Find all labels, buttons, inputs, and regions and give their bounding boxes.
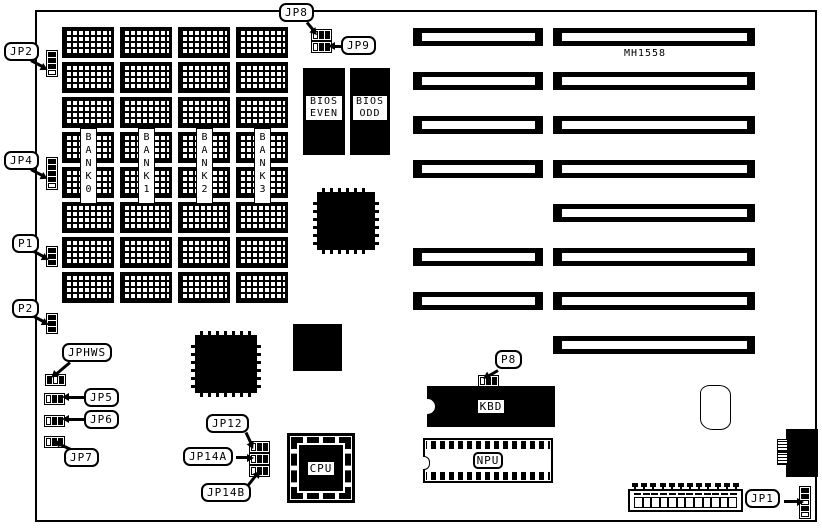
jumper-cell-closed (257, 455, 262, 463)
power-pin (724, 483, 730, 490)
jumper-cell-open (313, 43, 318, 51)
power-dash (730, 493, 737, 495)
p1-label: P1 (12, 234, 39, 253)
jumper-cell-closed (48, 52, 56, 57)
power-sq (711, 497, 720, 508)
jumper-cell-closed (59, 376, 64, 384)
power-sq (694, 497, 703, 508)
power-dash (678, 493, 685, 495)
jumper-cell-closed (48, 58, 56, 63)
npu-pin-row-bottom (426, 472, 550, 480)
bank-label-3: B A N K 3 (254, 128, 271, 204)
power-sq (703, 497, 712, 508)
p8-label: P8 (495, 350, 522, 369)
power-dash (686, 493, 693, 495)
power-dash (634, 493, 641, 495)
slot-6-short-segment (413, 248, 543, 266)
dram-chip (120, 237, 172, 268)
jp5-tail (67, 396, 85, 399)
dram-chip (178, 97, 230, 128)
dram-chip (178, 62, 230, 93)
slot-2-long-segment (553, 72, 755, 90)
power-dash (643, 493, 650, 495)
qfp-chip-chipset (191, 331, 261, 397)
jumper-cell-open (46, 395, 51, 403)
jumper-cell-closed (263, 443, 268, 451)
power-sq (634, 497, 643, 508)
dram-chip (178, 237, 230, 268)
battery-outline (700, 385, 731, 430)
dram-chip (178, 202, 230, 233)
power-sq (668, 497, 677, 508)
dram-chip (236, 202, 288, 233)
jumper-cell-closed (263, 467, 268, 475)
jumper-cell-open (48, 183, 56, 188)
jp14a-label: JP14A (183, 447, 233, 466)
board-model-label: MH1558 (600, 48, 690, 59)
dram-chip (236, 97, 288, 128)
slot-3-long-segment (553, 116, 755, 134)
slot-7-long-segment (553, 292, 755, 310)
jp4-label: JP4 (4, 151, 39, 170)
jp1-label: JP1 (745, 489, 780, 508)
slot-4-long-segment (553, 160, 755, 178)
power-pin (650, 483, 656, 490)
dram-chip (62, 62, 114, 93)
power-sq (660, 497, 669, 508)
slot-3-short-segment (413, 116, 543, 134)
jp1-tail (784, 500, 799, 503)
jumper-cell-closed (48, 248, 56, 253)
dram-chip (236, 237, 288, 268)
qfp-chip-large (313, 188, 379, 254)
npu-socket: NPU (423, 438, 553, 483)
bios-odd-chip: BIOSODD (350, 68, 390, 155)
npu-pin-row-top (426, 441, 550, 449)
jumper-cell-closed (48, 260, 56, 265)
bank-label-1: B A N K 1 (138, 128, 155, 204)
jumper-cell-closed (325, 31, 330, 39)
jumper-cell-closed (48, 177, 56, 182)
power-pin (687, 483, 693, 490)
dram-chip (178, 272, 230, 303)
bios-odd-label: BIOSODD (352, 95, 388, 121)
power-pin (696, 483, 702, 490)
jp14a-tail (236, 456, 249, 459)
jp14b-label: JP14B (201, 483, 251, 502)
jp12-label: JP12 (206, 414, 249, 433)
power-connector (628, 483, 743, 511)
power-pin (705, 483, 711, 490)
power-connector-holes (630, 497, 741, 510)
cpu-socket: CPU (287, 433, 355, 503)
power-pin (715, 483, 721, 490)
jumper-cell-closed (263, 455, 268, 463)
dram-chip (120, 27, 172, 58)
dram-chip (236, 62, 288, 93)
jumper-cell-closed (801, 488, 809, 493)
power-pin (641, 483, 647, 490)
slot-7-short-segment (413, 292, 543, 310)
power-dash (695, 493, 702, 495)
dram-chip (120, 62, 172, 93)
din-plug-top (777, 439, 788, 452)
jumper-cell-open (48, 70, 56, 75)
power-dash (721, 493, 728, 495)
power-sq (677, 497, 686, 508)
jumper-cell-open (46, 417, 51, 425)
power-sq (643, 497, 652, 508)
keyboard-controller-chip: KBD (427, 386, 555, 427)
power-pin (678, 483, 684, 490)
jp2-jumper (46, 50, 58, 77)
motherboard-diagram: { "board": { "model": "MH1558" }, "memor… (0, 0, 822, 532)
jumper-cell-closed (52, 395, 57, 403)
power-dash (704, 493, 711, 495)
cpu-label: CPU (307, 461, 336, 476)
power-sq (728, 497, 737, 508)
jphws-label: JPHWS (62, 343, 112, 362)
dram-chip (62, 237, 114, 268)
din-plug-bottom (777, 452, 788, 465)
power-sq (651, 497, 660, 508)
jp2-label: JP2 (4, 42, 39, 61)
jp8-label: JP8 (279, 3, 314, 22)
slot-1-short-segment (413, 28, 543, 46)
dram-chip (62, 27, 114, 58)
power-pin (669, 483, 675, 490)
dram-chip (62, 272, 114, 303)
slot-2-short-segment (413, 72, 543, 90)
power-dash (660, 493, 667, 495)
jp7-label: JP7 (64, 448, 99, 467)
dram-chip (120, 272, 172, 303)
jumper-cell-open (46, 438, 51, 446)
p2-label: P2 (12, 299, 39, 318)
jumper-cell-closed (492, 377, 497, 385)
dram-chip (62, 97, 114, 128)
slot-1-long-segment (553, 28, 755, 46)
bios-even-label: BIOSEVEN (305, 95, 343, 121)
power-sq (720, 497, 729, 508)
din-keyboard-connector (786, 429, 818, 477)
jumper-cell-closed (257, 443, 262, 451)
slot-8-long-segment (553, 336, 755, 354)
npu-label: NPU (473, 452, 504, 469)
power-dash (712, 493, 719, 495)
slot-5-long-segment (553, 204, 755, 222)
power-dash (669, 493, 676, 495)
slot-6-long-segment (553, 248, 755, 266)
jumper-cell-closed (48, 327, 56, 332)
jp9-label: JP9 (341, 36, 376, 55)
jumper-cell-closed (48, 159, 56, 164)
bios-even-chip: BIOSEVEN (303, 68, 345, 155)
jumper-cell-closed (52, 417, 57, 425)
kbd-label: KBD (478, 400, 505, 413)
jumper-cell-open (801, 512, 809, 517)
jumper-cell-closed (48, 165, 56, 170)
jumper-cell-closed (801, 506, 809, 511)
bank-label-0: B A N K 0 (80, 128, 97, 204)
jp6-tail (67, 418, 85, 421)
dram-chip (120, 97, 172, 128)
dram-chip (178, 27, 230, 58)
jp5-label: JP5 (84, 388, 119, 407)
power-pin (632, 483, 638, 490)
slot-4-short-segment (413, 160, 543, 178)
dram-chip (236, 27, 288, 58)
dram-chip (236, 272, 288, 303)
jp6-label: JP6 (84, 410, 119, 429)
power-pin (660, 483, 666, 490)
bank-label-2: B A N K 2 (196, 128, 213, 204)
square-chip (293, 324, 342, 371)
power-pin (733, 483, 739, 490)
dram-chip (120, 202, 172, 233)
power-sq (685, 497, 694, 508)
dram-chip (62, 202, 114, 233)
jumper-cell-closed (319, 43, 324, 51)
power-dash (651, 493, 658, 495)
